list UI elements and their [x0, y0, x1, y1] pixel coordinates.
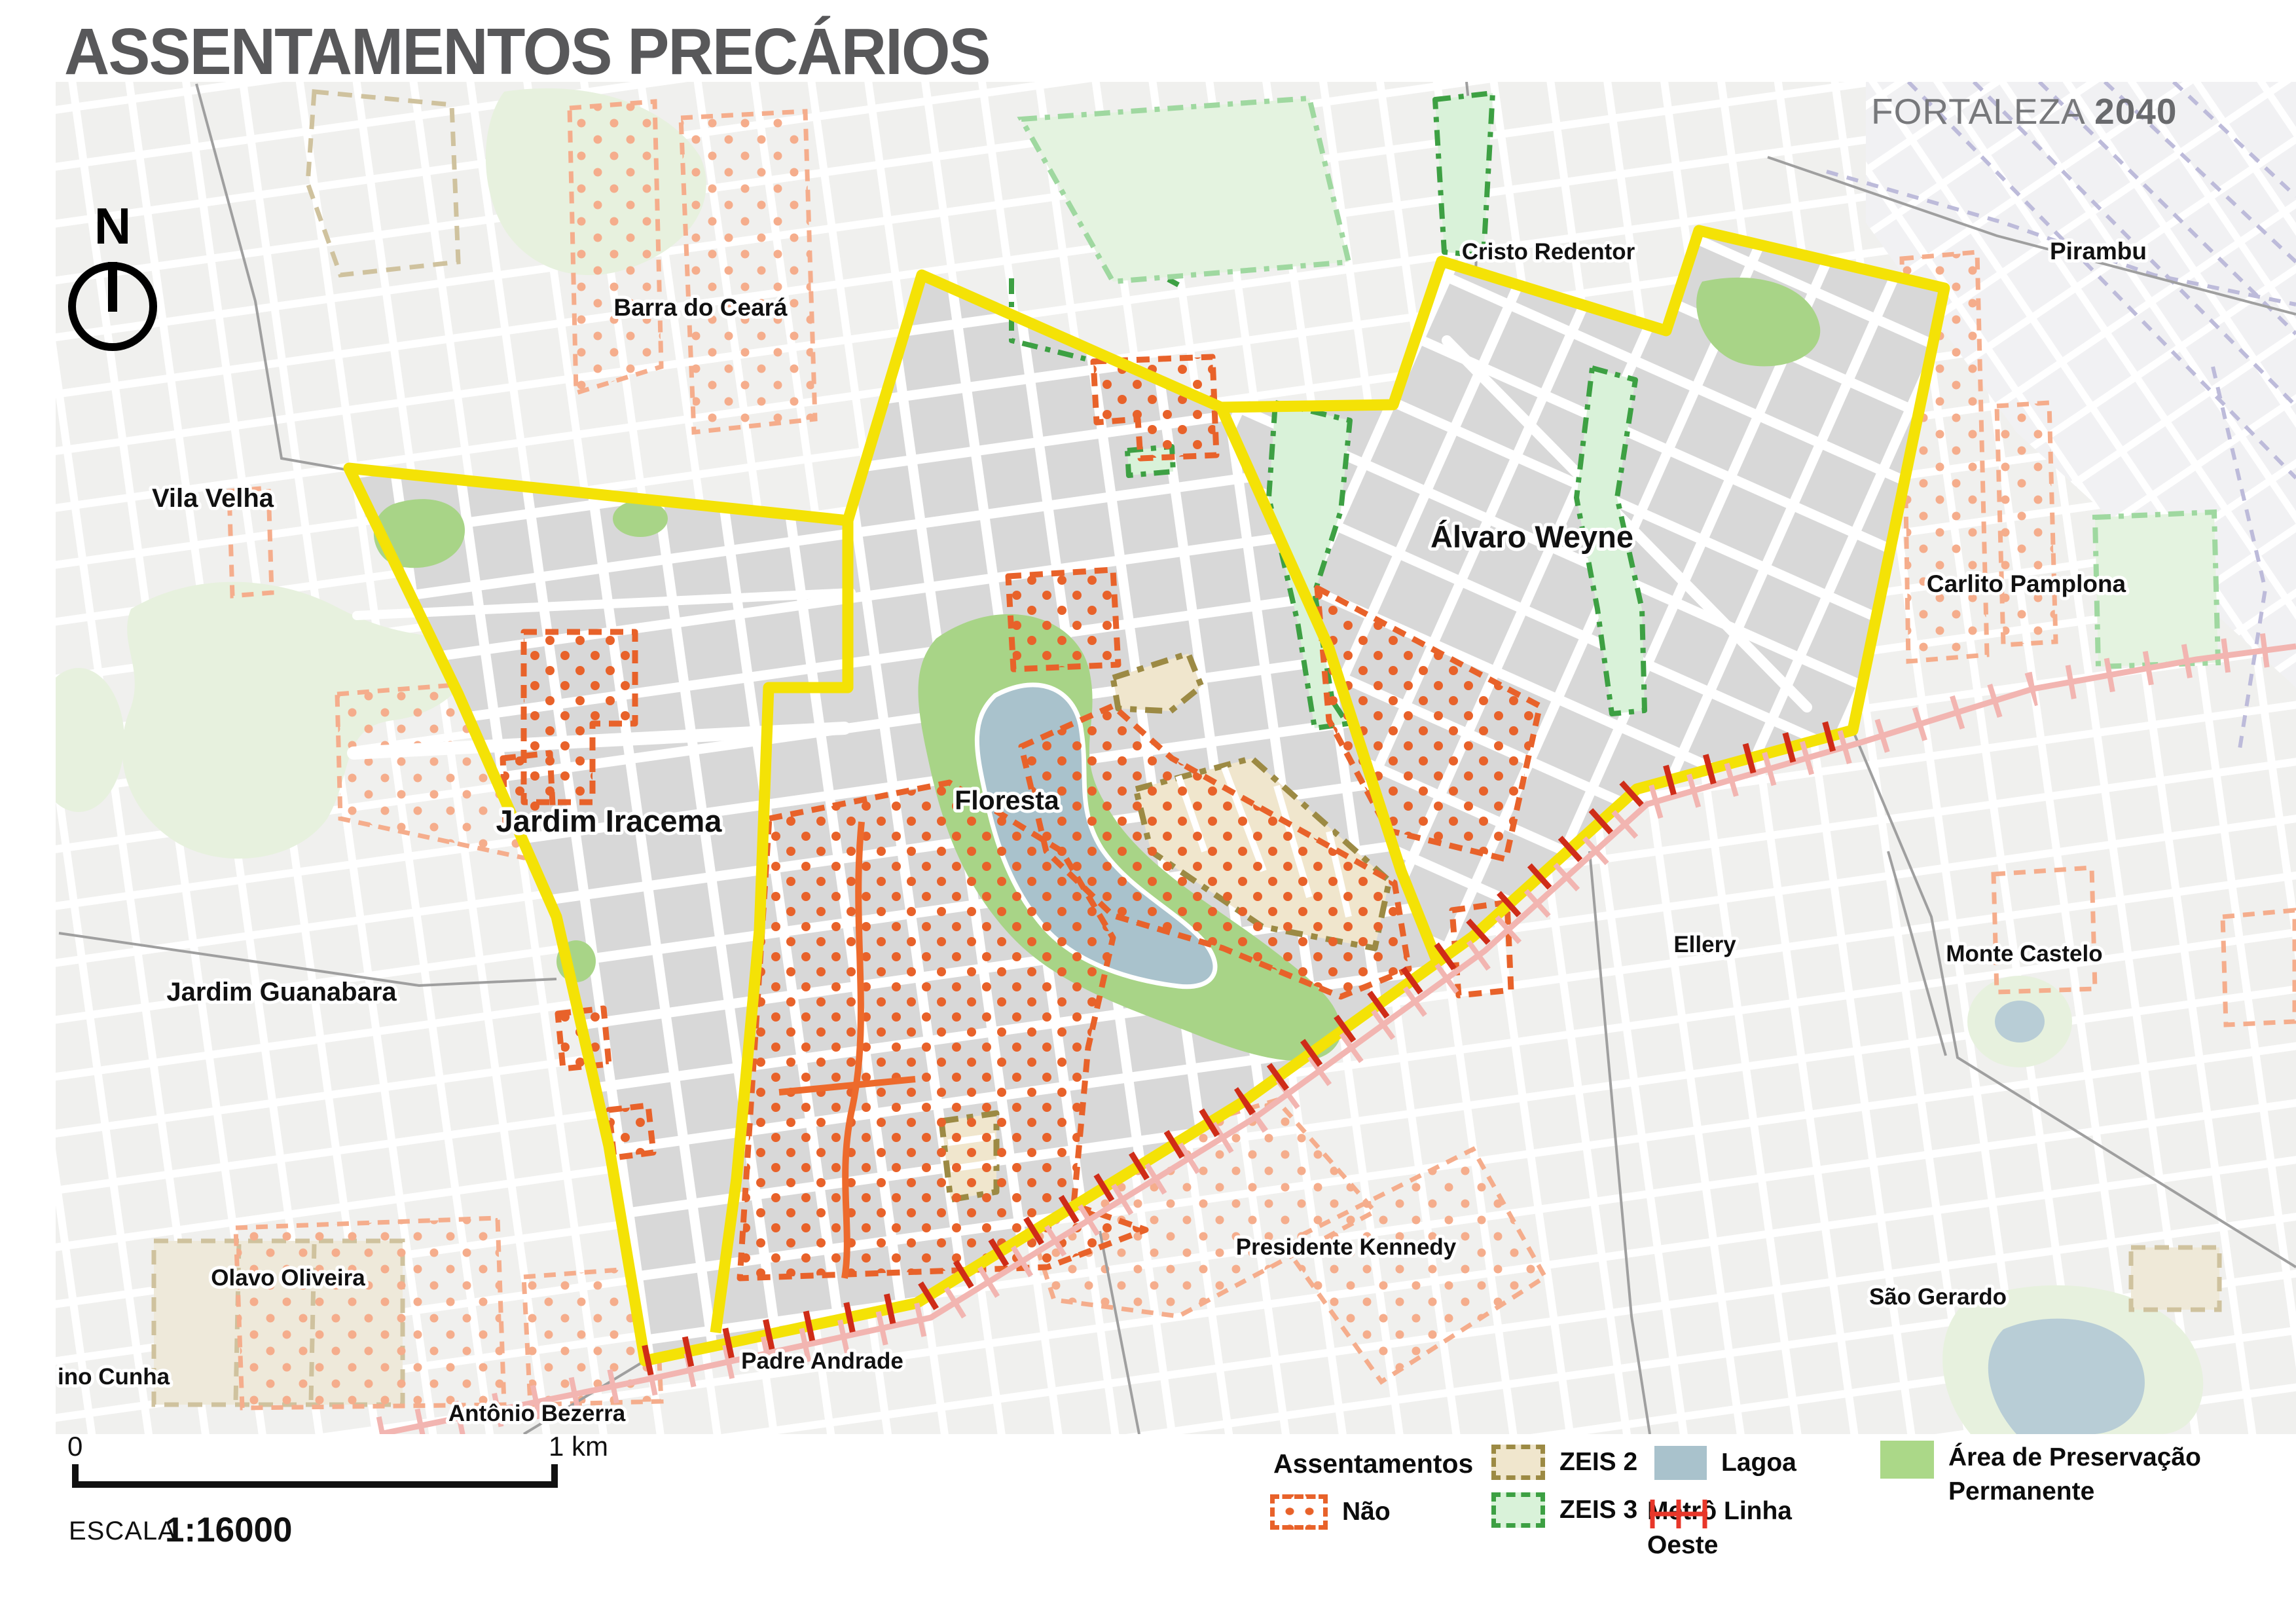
app-swatch — [1880, 1441, 1934, 1479]
nao-swatch — [1270, 1494, 1328, 1530]
label-barra-do-ceara: Barra do Ceará — [613, 294, 788, 321]
zeis3-label: ZEIS 3 — [1559, 1493, 1637, 1527]
brand-logo: FORTALEZA 2040 — [1871, 90, 2177, 132]
small-pond — [1995, 1001, 2045, 1043]
legend-item-app: Área de Preservação Permanente — [1880, 1441, 2201, 1509]
scalebar-1km: 1 km — [549, 1431, 608, 1462]
label-olavo-oliveira: Olavo Oliveira — [211, 1265, 365, 1291]
app-label-line2: Permanente — [1948, 1475, 2201, 1509]
label-cristo-redentor: Cristo Redentor — [1462, 239, 1635, 265]
scalebar-escala: ESCALA — [69, 1517, 176, 1546]
label-sao-gerardo: São Gerardo — [1869, 1284, 2007, 1310]
label-padre-andrade: Padre Andrade — [741, 1348, 903, 1374]
metro-symbol — [1647, 1494, 1710, 1531]
brand-year: 2040 — [2094, 91, 2177, 132]
zeis2-swatch — [1491, 1445, 1545, 1480]
label-presidente-kennedy: Presidente Kennedy — [1236, 1234, 1457, 1260]
north-needle — [108, 262, 117, 312]
label-jardim-iracema: Jardim Iracema — [496, 803, 723, 838]
lagoa-swatch — [1654, 1446, 1707, 1480]
legend-item-lagoa: Lagoa — [1654, 1446, 1796, 1480]
north-letter: N — [94, 197, 131, 255]
label-quintino-cunha: ino Cunha — [58, 1364, 170, 1390]
metro-label-line2: Oeste — [1647, 1528, 1792, 1562]
label-monte-castelo: Monte Castelo — [1946, 941, 2102, 967]
label-pirambu: Pirambu — [2050, 238, 2147, 265]
legend-item-nao: Não — [1270, 1494, 1391, 1530]
legend-item-metro: Metrô Linha Oeste — [1647, 1494, 1792, 1562]
nao-label: Não — [1342, 1495, 1391, 1529]
scalebar — [72, 1481, 558, 1488]
zeis2-label: ZEIS 2 — [1559, 1445, 1637, 1479]
legend-title-assentamentos: Assentamentos — [1273, 1449, 1473, 1479]
page-title: ASSENTAMENTOS PRECÁRIOS — [64, 14, 990, 90]
brand-city: FORTALEZA — [1871, 91, 2084, 132]
lagoa-label: Lagoa — [1721, 1446, 1796, 1480]
label-antonio-bezerra: Antônio Bezerra — [448, 1401, 626, 1426]
map-sheet: Barra do Ceará Cristo Redentor Pirambu V… — [0, 0, 2296, 1624]
legend-item-zeis3: ZEIS 3 — [1491, 1492, 1637, 1528]
legend-item-zeis2: ZEIS 2 — [1491, 1445, 1637, 1480]
zeis3-swatch — [1491, 1492, 1545, 1528]
map-canvas: Barra do Ceará Cristo Redentor Pirambu V… — [0, 0, 2296, 1624]
scalebar-zero: 0 — [67, 1431, 82, 1462]
scalebar-ratio: 1:16000 — [165, 1510, 293, 1550]
label-carlito-pamplona: Carlito Pamplona — [1927, 570, 2126, 597]
app-label-line1: Área de Preservação — [1948, 1441, 2201, 1475]
label-floresta: Floresta — [955, 785, 1060, 815]
label-alvaro-weyne: Álvaro Weyne — [1430, 519, 1633, 554]
label-ellery: Ellery — [1673, 932, 1736, 957]
app-label: Área de Preservação Permanente — [1948, 1441, 2201, 1509]
label-jardim-guanabara: Jardim Guanabara — [166, 978, 397, 1006]
label-vila-velha: Vila Velha — [152, 484, 274, 513]
